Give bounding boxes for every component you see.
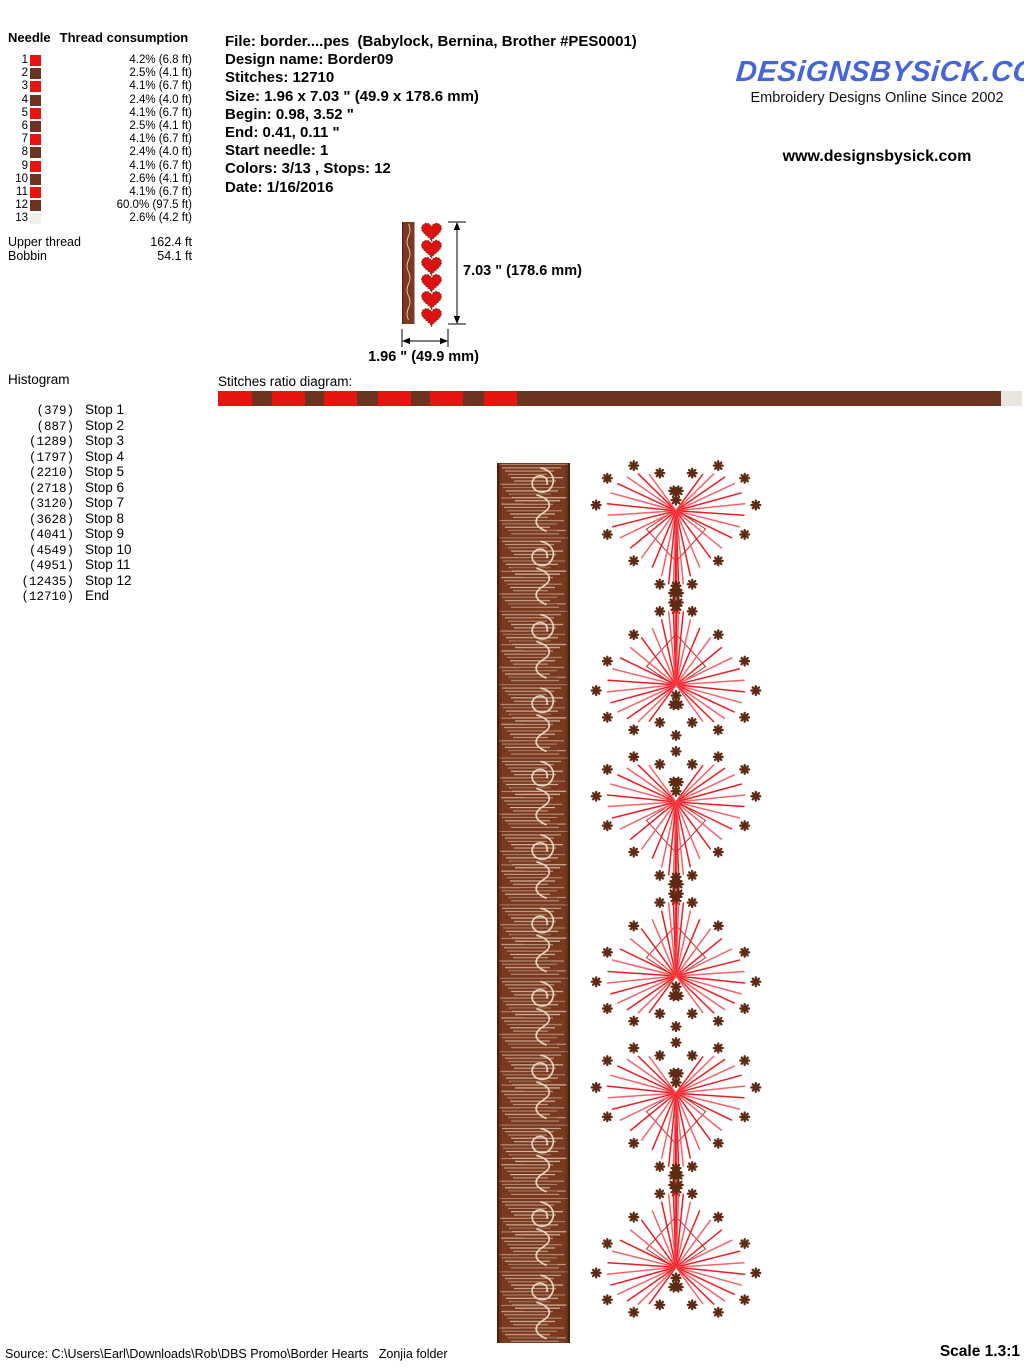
needle-color-swatch [30,174,41,185]
needle-number: 8 [8,146,28,159]
needle-color-swatch [30,68,41,79]
histogram-row: (3628)Stop 8 [8,511,132,527]
stop-stitch-count: (3628) [8,513,74,527]
needle-color-swatch [30,121,41,132]
needle-consumption: 60.0% (97.5 ft) [41,199,192,212]
thread-column-header: Thread consumption [60,30,189,45]
file-info-line: End: 0.41, 0.11 " [225,124,637,142]
stitch-strip [497,463,570,1343]
stop-label: Stop 7 [85,495,124,510]
needle-color-swatch [30,108,41,119]
histogram-row: (4041)Stop 9 [8,526,132,542]
needle-row: 94.1% (6.7 ft) [8,160,192,173]
stop-label: Stop 1 [85,402,124,417]
file-info-line: Start needle: 1 [225,142,637,160]
needle-number: 4 [8,94,28,107]
needle-row: 74.1% (6.7 ft) [8,133,192,146]
needle-consumption: 2.5% (4.1 ft) [41,67,192,80]
needle-consumption: 2.6% (4.1 ft) [41,173,192,186]
stop-label: Stop 11 [85,557,131,572]
ratio-segment [430,391,463,406]
histogram-row: (12710)End [8,588,132,604]
ratio-segment [463,391,484,406]
thread-totals: Upper thread162.4 ftBobbin54.1 ft [8,236,192,263]
needle-row: 14.2% (6.8 ft) [8,54,192,67]
ratio-segment [1001,391,1022,406]
thread-total-row: Upper thread162.4 ft [8,236,192,250]
needle-number: 13 [8,212,28,225]
stop-stitch-count: (4041) [8,528,74,542]
stop-label: Stop 5 [85,464,124,479]
needle-number: 1 [8,54,28,67]
ratio-segment [218,391,252,406]
histogram: Histogram (379)Stop 1(887)Stop 2(1289)St… [8,372,132,604]
histogram-row: (1797)Stop 4 [8,449,132,465]
stop-stitch-count: (12710) [8,590,74,604]
ratio-segment [411,391,430,406]
needle-color-swatch [30,95,41,106]
needle-row: 54.1% (6.7 ft) [8,107,192,120]
histogram-row: (3120)Stop 7 [8,495,132,511]
ratio-segment [305,391,324,406]
histogram-row: (1289)Stop 3 [8,433,132,449]
histogram-row: (2718)Stop 6 [8,480,132,496]
needle-row: 62.5% (4.1 ft) [8,120,192,133]
needle-consumption: 2.6% (4.2 ft) [41,212,192,225]
file-info-line: Design name: Border09 [225,51,637,69]
needle-consumption: 2.5% (4.1 ft) [41,120,192,133]
stop-stitch-count: (1797) [8,451,74,465]
source-path: Source: C:\Users\Earl\Downloads\Rob\DBS … [5,1347,448,1361]
stop-stitch-count: (2210) [8,466,74,480]
stop-stitch-count: (12435) [8,575,74,589]
histogram-row: (887)Stop 2 [8,418,132,434]
needle-number: 7 [8,133,28,146]
needle-color-swatch [30,147,41,158]
needle-number: 12 [8,199,28,212]
needle-color-swatch [30,187,41,198]
file-info-line: Stitches: 12710 [225,69,637,87]
stop-stitch-count: (1289) [8,435,74,449]
needle-row: 114.1% (6.7 ft) [8,186,192,199]
thread-total-label: Upper thread [8,236,81,250]
stop-label: Stop 8 [85,511,124,526]
ratio-segment [484,391,517,406]
thread-consumption-table: Needle Thread consumption 14.2% (6.8 ft)… [8,30,192,263]
brand: DESiGNSBYSiCK.COM Embroidery Designs Onl… [736,56,1018,166]
histogram-row: (2210)Stop 5 [8,464,132,480]
needle-row: 82.4% (4.0 ft) [8,146,192,159]
needle-row: 42.4% (4.0 ft) [8,94,192,107]
needle-consumption: 4.1% (6.7 ft) [41,133,192,146]
brand-url: www.designsbysick.com [736,148,1018,166]
needle-number: 6 [8,120,28,133]
stop-label: Stop 9 [85,526,124,541]
design-thumbnail [395,215,490,365]
needle-consumption: 4.1% (6.7 ft) [41,107,192,120]
needle-column-header: Needle [8,30,51,45]
stitches-ratio-bar [218,391,1022,406]
brand-tagline: Embroidery Designs Online Since 2002 [736,90,1018,106]
ratio-segment [517,391,1001,406]
needle-row: 102.6% (4.1 ft) [8,173,192,186]
stop-stitch-count: (2718) [8,482,74,496]
needle-consumption: 4.1% (6.7 ft) [41,160,192,173]
needle-row: 34.1% (6.7 ft) [8,80,192,93]
needle-number: 11 [8,186,28,199]
stop-stitch-count: (4549) [8,544,74,558]
stop-label: Stop 4 [85,449,124,464]
needle-number: 2 [8,67,28,80]
histogram-rows: (379)Stop 1(887)Stop 2(1289)Stop 3(1797)… [8,402,132,604]
dim-label-width: 1.96 " (49.9 mm) [356,349,491,365]
needle-row: 1260.0% (97.5 ft) [8,199,192,212]
stop-label: Stop 6 [85,480,124,495]
stop-stitch-count: (379) [8,404,74,418]
ratio-segment [252,391,272,406]
ratio-segment [378,391,411,406]
stop-label: Stop 2 [85,418,124,433]
file-info-line: File: border....pes (Babylock, Bernina, … [225,33,637,51]
stop-label: Stop 10 [85,542,132,557]
needle-rows: 14.2% (6.8 ft)22.5% (4.1 ft)34.1% (6.7 f… [8,54,192,225]
thread-total-value: 54.1 ft [157,250,192,264]
needle-row: 22.5% (4.1 ft) [8,67,192,80]
thread-total-value: 162.4 ft [150,236,192,250]
needle-color-swatch [30,161,41,172]
thumbnail-strip [402,222,415,324]
histogram-row: (4549)Stop 10 [8,542,132,558]
needle-consumption: 4.2% (6.8 ft) [41,54,192,67]
file-info: File: border....pes (Babylock, Bernina, … [225,33,637,197]
file-info-line: Size: 1.96 x 7.03 " (49.9 x 178.6 mm) [225,88,637,106]
stop-stitch-count: (3120) [8,497,74,511]
file-info-line: Colors: 3/13 , Stops: 12 [225,160,637,178]
needle-color-swatch [30,55,41,66]
needle-color-swatch [30,213,41,224]
histogram-row: (4951)Stop 11 [8,557,132,573]
needle-color-swatch [30,81,41,92]
histogram-row: (12435)Stop 12 [8,573,132,589]
needle-color-swatch [30,134,41,145]
thread-total-row: Bobbin54.1 ft [8,250,192,264]
stitches-ratio-title: Stitches ratio diagram: [218,374,1024,389]
stop-label: Stop 12 [85,573,132,588]
needle-number: 9 [8,160,28,173]
stop-stitch-count: (887) [8,420,74,434]
needle-number: 3 [8,80,28,93]
thumbnail-hearts [422,223,442,326]
thread-total-label: Bobbin [8,250,47,264]
needle-number: 10 [8,173,28,186]
needle-color-swatch [30,200,41,211]
design-preview [480,460,770,1355]
brand-logo: DESiGNSBYSiCK.COM [735,56,1020,89]
needle-consumption: 4.1% (6.7 ft) [41,80,192,93]
ratio-segment [272,391,305,406]
stop-label: Stop 3 [85,433,124,448]
histogram-title: Histogram [8,372,132,387]
ratio-segment [324,391,357,406]
file-info-line: Date: 1/16/2016 [225,179,637,197]
needle-number: 5 [8,107,28,120]
needle-consumption: 2.4% (4.0 ft) [41,146,192,159]
ratio-segment [357,391,377,406]
thread-consumption-header: Needle Thread consumption [8,30,192,45]
needle-row: 132.6% (4.2 ft) [8,212,192,225]
needle-consumption: 4.1% (6.7 ft) [41,186,192,199]
needle-consumption: 2.4% (4.0 ft) [41,94,192,107]
scale-label: Scale 1.3:1 [925,1343,1020,1361]
stitches-ratio: Stitches ratio diagram: [218,374,1024,406]
stop-stitch-count: (4951) [8,559,74,573]
file-info-line: Begin: 0.98, 3.52 " [225,106,637,124]
stop-label: End [85,588,109,603]
dim-label-height: 7.03 " (178.6 mm) [463,263,582,279]
histogram-row: (379)Stop 1 [8,402,132,418]
